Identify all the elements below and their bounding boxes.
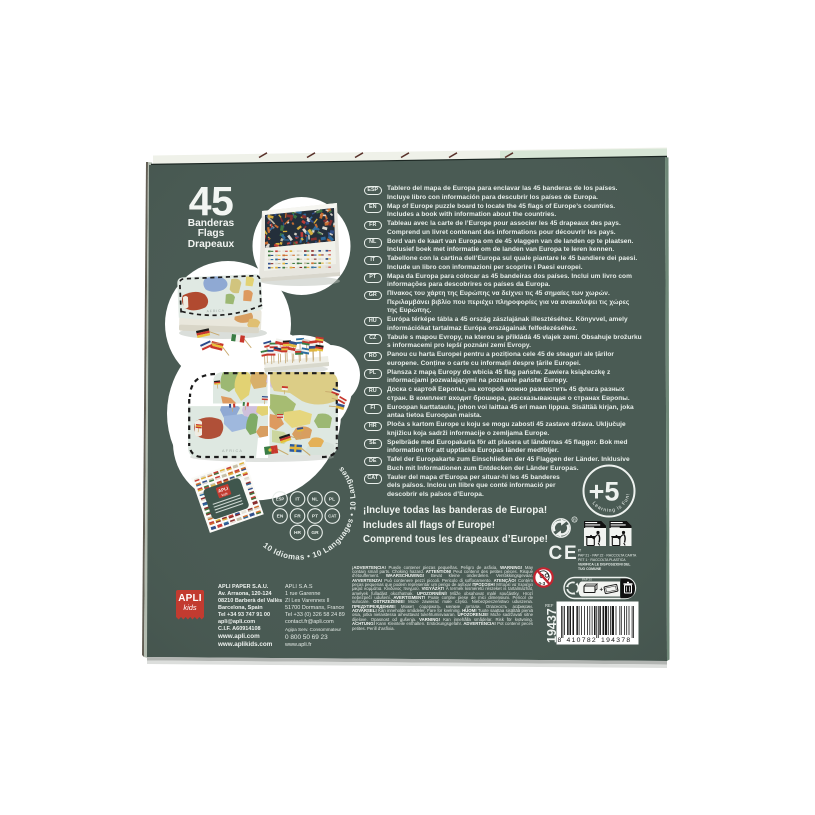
svg-text:+: + [600,588,604,594]
svg-text:19437: 19437 [545,608,559,643]
svg-text:PAP 21 - PAP 22 · RACCOLTA CAR: PAP 21 - PAP 22 · RACCOLTA CARTA [578,554,637,558]
svg-text:PT: PT [312,514,318,520]
svg-text:IT: IT [295,497,299,503]
svg-text:FR: FR [294,514,301,520]
svg-text:NL: NL [312,497,318,503]
svg-text:+5: +5 [589,477,620,507]
svg-text:0-3: 0-3 [539,581,546,586]
svg-text:CE: CE [549,543,579,564]
svg-text:AFRICA: AFRICA [206,309,225,314]
svg-text:410782: 410782 [567,637,597,644]
svg-text:194378: 194378 [601,637,631,644]
svg-text:PAP 20: PAP 20 [582,578,592,582]
svg-text:HR: HR [294,530,301,536]
svg-text:REF: REF [545,603,554,608]
svg-text:AFRICA: AFRICA [222,449,243,453]
svg-text:GR: GR [311,530,319,536]
svg-text:VERIFICA LE DISPOSIZIONI DEL: VERIFICA LE DISPOSIZIONI DEL [578,563,630,567]
svg-text:R: R [573,517,576,522]
svg-text:ESP: ESP [276,497,284,502]
svg-text:EN: EN [277,514,284,520]
svg-text:CAT: CAT [328,514,337,519]
svg-text:TUO COMUNE: TUO COMUNE [578,567,602,571]
svg-text:PET 1 · RACCOLTA PLASTICA: PET 1 · RACCOLTA PLASTICA [578,558,626,562]
svg-text:PL: PL [329,497,335,503]
